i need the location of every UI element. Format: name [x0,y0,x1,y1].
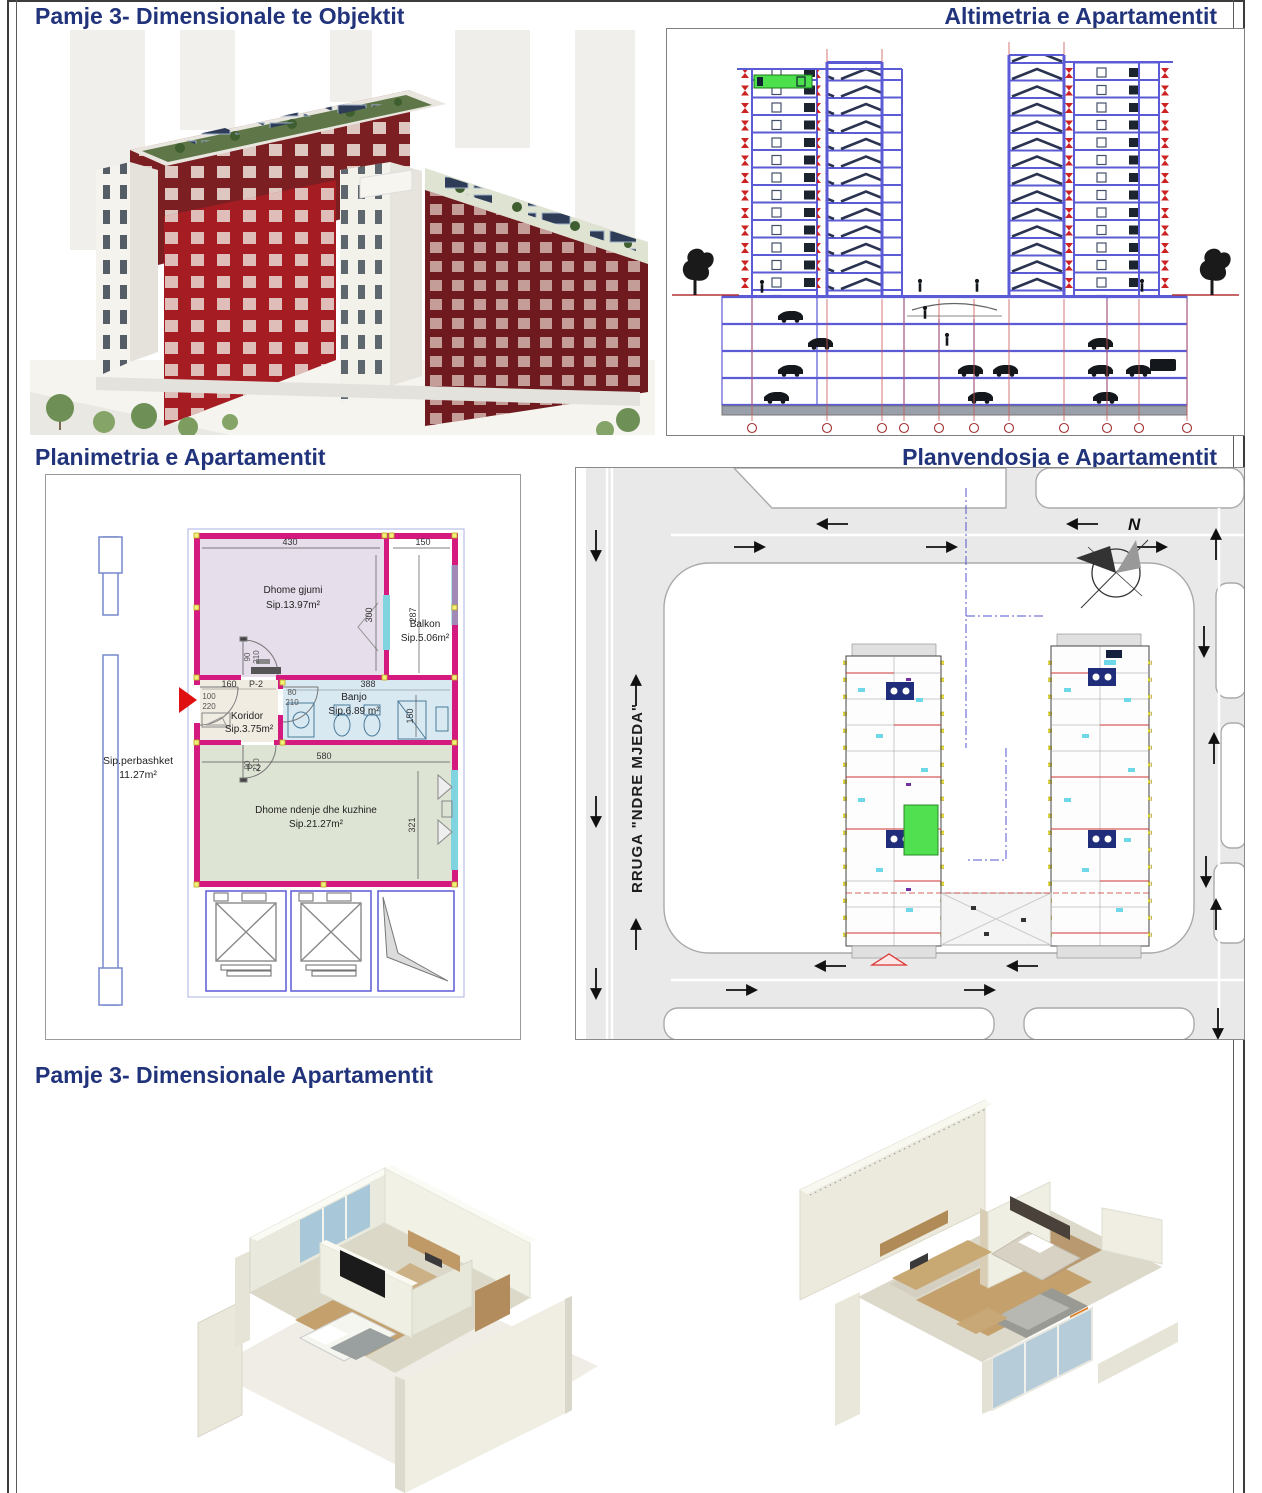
dim-bath-h: 150 [405,708,415,723]
room-label-corridor: Koridor [231,711,264,722]
title-building-3d: Pamje 3- Dimensionale te Objektit [35,3,404,30]
dim-balcony-w: 150 [415,537,430,547]
street-name-label: RRUGA "NDRE MJEDA" [629,703,646,893]
dim-living-h: 321 [407,817,417,832]
building-middle-tower [340,162,422,403]
room-area-bath: Sip.6.89 m² [328,706,380,717]
dim-corridor-w: 160 [221,679,236,689]
room-area-living: Sip.21.27m² [289,819,344,830]
title-floorplan: Planimetria e Apartamentit [35,444,326,471]
elevator-core [886,682,914,700]
elevation-panel [666,28,1245,436]
dim-beddoor-h: 210 [252,650,261,664]
section-parking [722,279,1187,415]
floorplan-panel: Dhome gjumi Sip.13.97m² Balkon Sip.5.06m… [45,474,521,1040]
room-label-living: Dhome ndenje dhe kuzhine [255,805,377,816]
compass-north-label: N [1128,515,1141,534]
building-left-tower [96,162,158,377]
common-area-value: 11.27m² [119,769,157,781]
dim-bedroom-h: 300 [364,607,374,622]
apartment-3d-view-right [740,1092,1190,1477]
apartment-3d-view-left [180,1108,610,1493]
highlighted-unit-plan [904,805,938,855]
title-elevation: Altimetria e Apartamentit [666,3,1217,30]
drawing-sheet: Pamje 3- Dimensionale te Objektit Altime… [0,0,1262,1493]
dim-bathdoor-h: 210 [285,698,299,707]
room-label-bath: Banjo [341,692,367,703]
building-plan-left-wing [843,644,944,958]
room-area-corridor: Sip.3.75m² [225,724,274,735]
foundation-slab [722,406,1187,415]
dim-entry-w: 100 [202,692,216,701]
siteplan-panel: RRUGA "NDRE MJEDA" N [575,467,1245,1040]
title-apartment-3d: Pamje 3- Dimensionale Apartamentit [35,1062,433,1089]
dim-living-w: 580 [316,751,331,761]
room-balcony [389,539,452,677]
dim-balcony-h: 287 [408,607,418,622]
building-3d-render [30,30,655,435]
dim-beddoor-w: 90 [243,652,252,661]
room-area-balcony: Sip.5.06m² [401,633,450,644]
common-area-label: Sip.perbashket [103,755,173,767]
door-type-bed: P-2 [249,679,263,689]
elevators-stairs [206,891,454,991]
dim-bedroom-w: 430 [282,537,297,547]
door-type-living: P-2 [247,763,261,773]
dim-bathdoor-w: 80 [288,688,297,697]
dim-entry-h: 220 [202,702,216,711]
dim-bath-w: 388 [360,679,375,689]
room-area-bedroom: Sip.13.97m² [266,600,321,611]
building-plan-right-wing [1048,634,1152,958]
room-label-bedroom: Dhome gjumi [264,585,323,596]
